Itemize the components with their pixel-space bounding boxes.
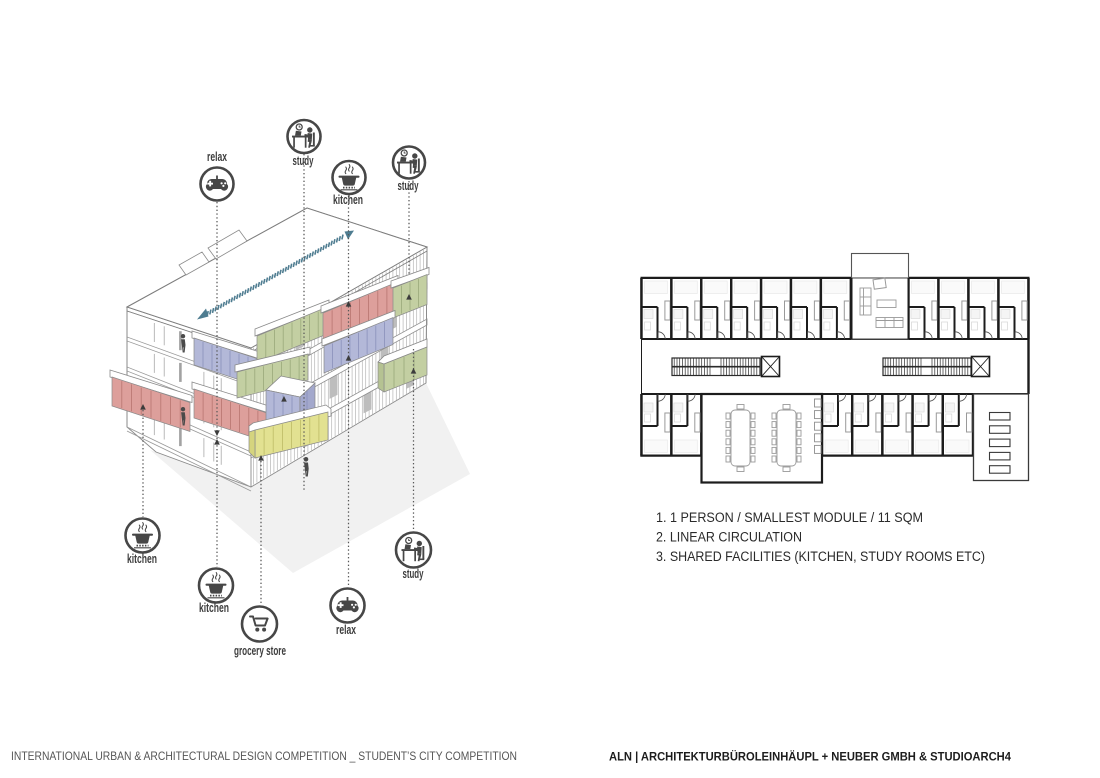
- svg-text:study: study: [293, 154, 314, 168]
- svg-text:relax: relax: [207, 150, 227, 164]
- svg-text:INTERNATIONAL URBAN & ARCHITEC: INTERNATIONAL URBAN & ARCHITECTURAL DESI…: [11, 750, 517, 763]
- svg-text:relax: relax: [336, 623, 356, 637]
- svg-text:study: study: [403, 567, 424, 581]
- svg-text:kitchen: kitchen: [333, 193, 363, 207]
- svg-text:1. 1 PERSON / SMALLEST MODULE: 1. 1 PERSON / SMALLEST MODULE / 11 SQM: [656, 510, 923, 525]
- svg-text:grocery store: grocery store: [234, 644, 286, 658]
- svg-text:ALN | ARCHITEKTURBÜROLEINHÄUPL: ALN | ARCHITEKTURBÜROLEINHÄUPL + NEUBER …: [609, 749, 1011, 764]
- svg-text:kitchen: kitchen: [199, 601, 229, 615]
- svg-text:kitchen: kitchen: [127, 552, 157, 566]
- svg-text:2. LINEAR CIRCULATION: 2. LINEAR CIRCULATION: [656, 530, 802, 545]
- svg-text:study: study: [398, 179, 419, 193]
- svg-text:3. SHARED FACILITIES (KITCHEN,: 3. SHARED FACILITIES (KITCHEN, STUDY ROO…: [656, 549, 985, 564]
